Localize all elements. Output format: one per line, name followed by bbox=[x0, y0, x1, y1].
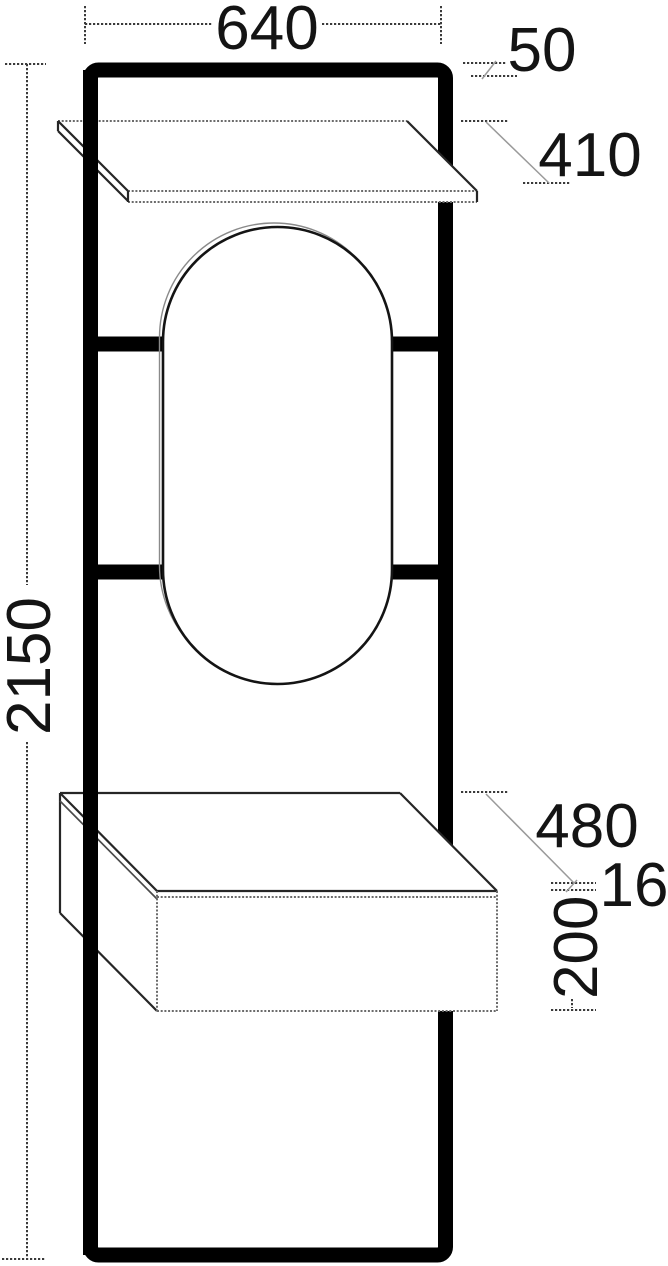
front-height-dimension-line bbox=[551, 999, 596, 1010]
dimension-frame-profile: 50 bbox=[463, 16, 576, 85]
dimension-shelf-depth: 410 bbox=[461, 121, 642, 190]
dimension-front-height-label: 200 bbox=[542, 896, 611, 999]
oval-mirror bbox=[160, 223, 393, 684]
dimension-frame-profile-label: 50 bbox=[508, 16, 577, 85]
shelf bbox=[58, 121, 477, 202]
drawer-box bbox=[60, 793, 497, 1011]
dimension-height-label: 2150 bbox=[0, 597, 64, 735]
dimension-front-height: 200 bbox=[542, 896, 611, 1010]
dimension-width: 640 bbox=[85, 0, 441, 63]
dimension-shelf-depth-label: 410 bbox=[538, 121, 641, 190]
dimension-height: 2150 bbox=[0, 64, 64, 1259]
mirror-shape bbox=[163, 227, 392, 684]
drawing-canvas: 640 50 410 2150 480 16 bbox=[0, 0, 668, 1266]
dimension-width-label: 640 bbox=[215, 0, 318, 63]
technical-drawing: 640 50 410 2150 480 16 bbox=[0, 0, 668, 1266]
shelf-silhouette bbox=[58, 121, 477, 202]
